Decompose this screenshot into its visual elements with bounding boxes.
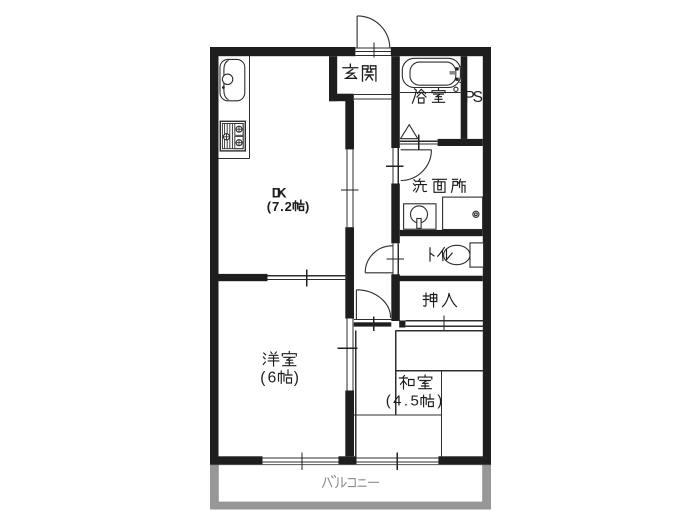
svg-text:): ): [437, 392, 442, 409]
svg-text:PS: PS: [465, 89, 484, 106]
svg-text:): ): [294, 369, 299, 386]
svg-text:(7.2: (7.2: [267, 199, 292, 214]
svg-text:(6: (6: [260, 369, 276, 386]
svg-text:): ): [305, 199, 309, 214]
